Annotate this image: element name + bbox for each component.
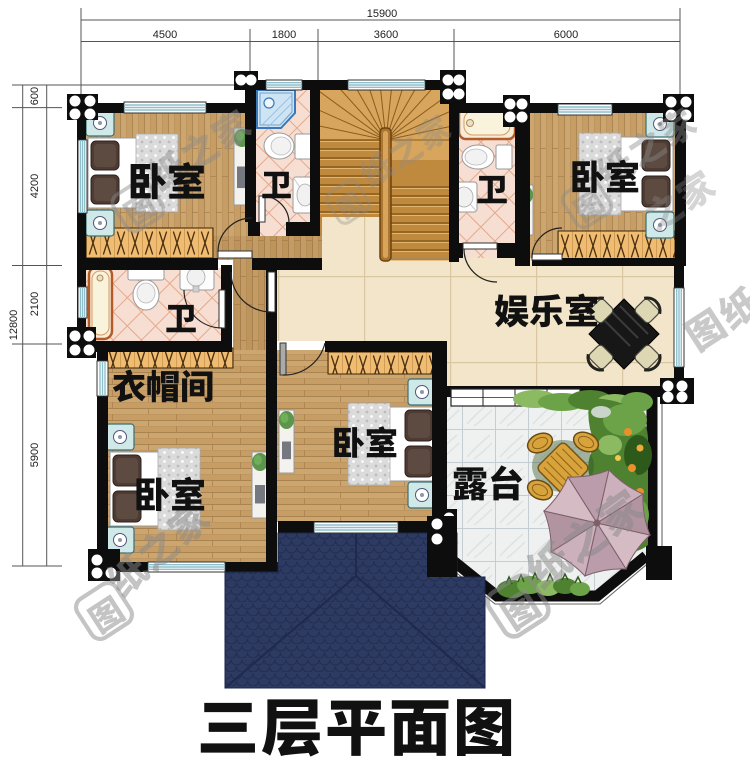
svg-text:4500: 4500 [153, 29, 177, 41]
svg-text:2100: 2100 [29, 292, 41, 316]
svg-text:12800: 12800 [8, 310, 20, 341]
svg-text:6000: 6000 [554, 29, 578, 41]
svg-text:600: 600 [29, 87, 41, 105]
svg-text:4200: 4200 [29, 174, 41, 198]
svg-text:1800: 1800 [272, 29, 296, 41]
svg-text:5900: 5900 [29, 443, 41, 467]
svg-text:3600: 3600 [374, 29, 398, 41]
svg-text:15900: 15900 [367, 8, 398, 20]
